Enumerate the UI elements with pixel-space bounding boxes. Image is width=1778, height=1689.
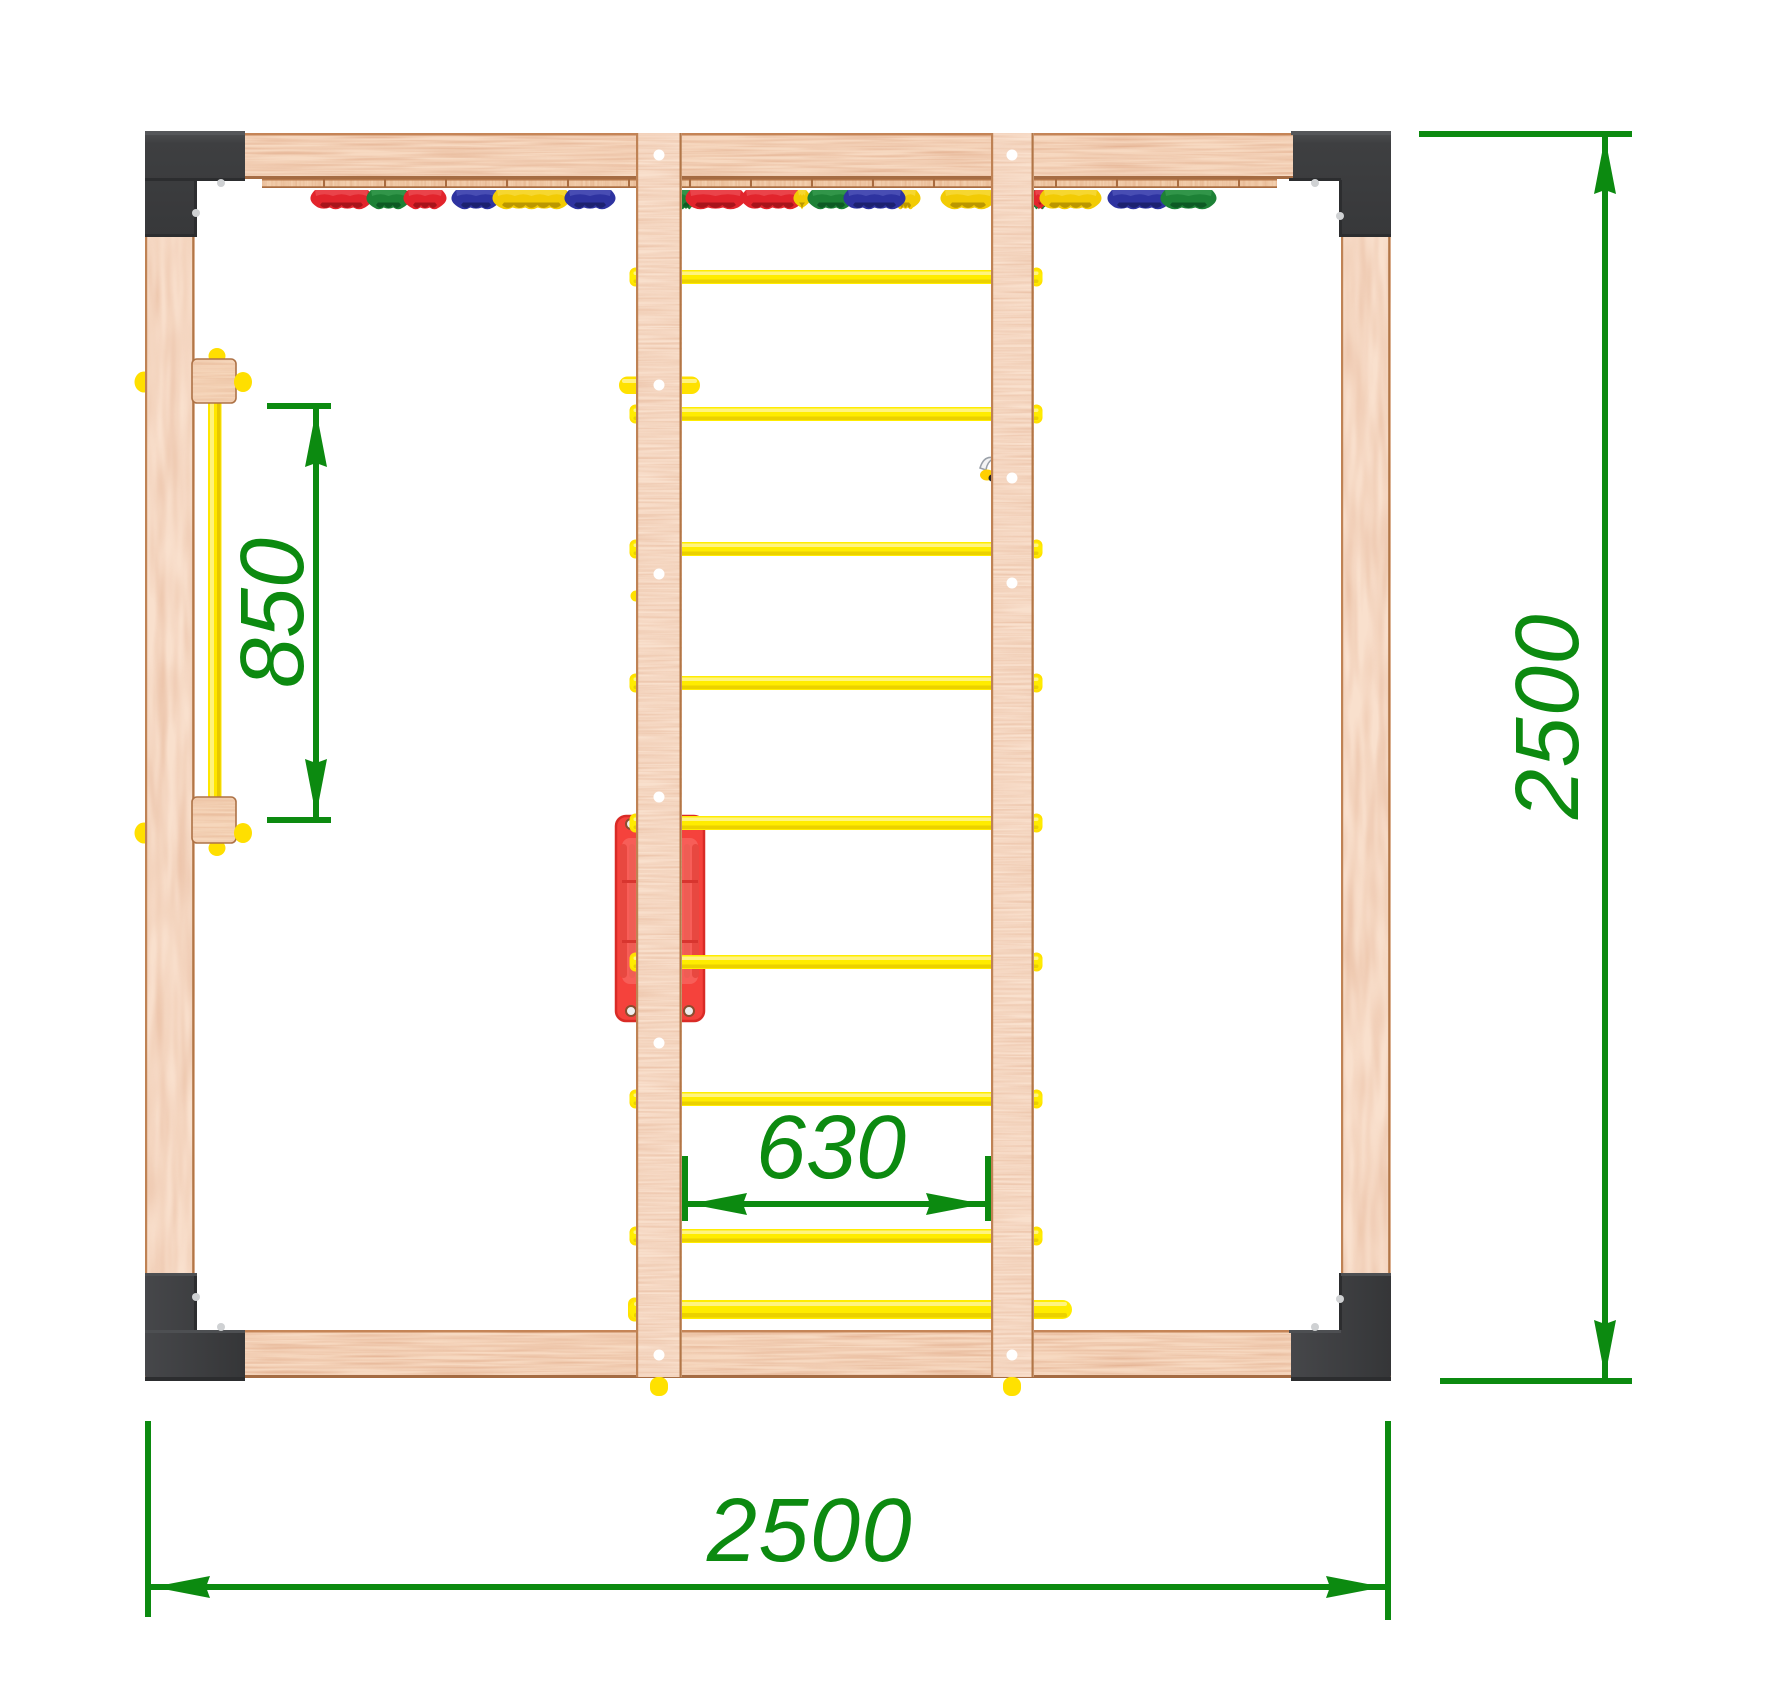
svg-text:2500: 2500: [706, 1481, 913, 1581]
svg-text:630: 630: [756, 1098, 906, 1198]
svg-text:2500: 2500: [1498, 613, 1598, 820]
svg-text:850: 850: [223, 538, 323, 688]
